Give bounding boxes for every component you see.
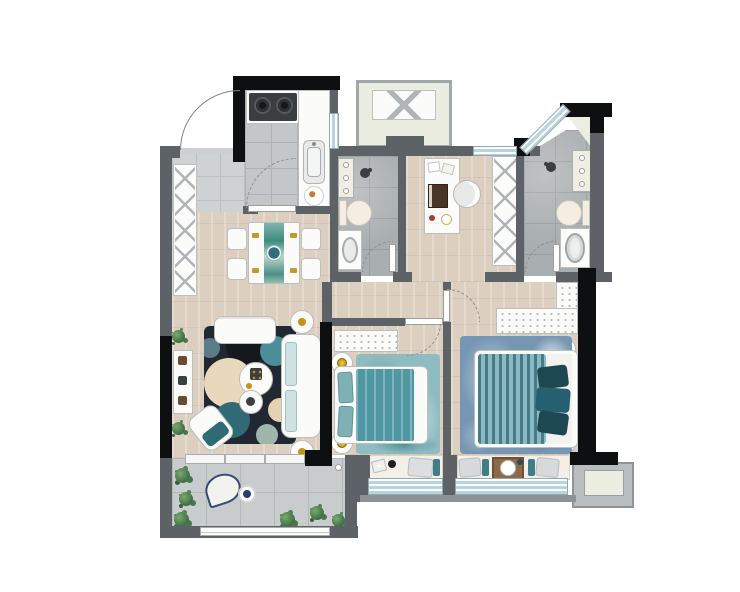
- wall-accent: [305, 450, 332, 466]
- toilet-tank: [582, 200, 590, 226]
- shower-head-icon: [360, 168, 370, 178]
- master-door-leaf: [443, 290, 450, 322]
- tv-console-decor: [178, 396, 187, 405]
- window-sill: [449, 495, 576, 502]
- wall-accent: [160, 336, 172, 458]
- lipstick: [429, 215, 435, 221]
- shelf-jar: [579, 181, 585, 187]
- wall: [296, 206, 338, 214]
- washbasin: [342, 237, 358, 263]
- shelf-jar: [343, 162, 349, 168]
- bathroom-door-leaf: [389, 244, 396, 272]
- vanity-mirror: [428, 184, 448, 208]
- vanity-stool: [453, 180, 481, 208]
- linen-cabinet-cell: [494, 212, 516, 238]
- shelf-jar: [579, 155, 585, 161]
- coffee-table-tray: [250, 368, 262, 380]
- bedroom2-bay-window: [368, 478, 443, 495]
- wall: [590, 130, 604, 282]
- tv-console-decor: [178, 356, 187, 365]
- kitchen-door-leaf: [248, 205, 296, 212]
- plant: [310, 506, 324, 520]
- tray-cup: [517, 459, 523, 465]
- shoe-cabinet-cell: [175, 269, 195, 294]
- wall-accent: [590, 103, 604, 133]
- shoe-cabinet-cell: [175, 244, 195, 269]
- seat-pillow: [535, 457, 560, 478]
- sofa-two-seat: [214, 316, 276, 344]
- wall-accent: [320, 322, 332, 458]
- master-bay-window: [455, 478, 568, 495]
- shoe-cabinet-cell: [175, 166, 195, 191]
- seat-pillow-teal: [482, 459, 489, 476]
- shoe-cabinet-cell: [175, 192, 195, 217]
- balcony-knob: [335, 464, 342, 471]
- dining-chair: [301, 228, 321, 250]
- plant: [179, 492, 193, 506]
- wall-accent: [570, 452, 618, 465]
- side-table-decor: [298, 318, 306, 326]
- place-setting: [252, 268, 259, 273]
- toilet-bowl: [346, 200, 372, 226]
- plant: [172, 330, 185, 343]
- wall: [443, 322, 451, 455]
- wall: [393, 272, 412, 282]
- kitchen-faucet: [312, 142, 316, 146]
- shelf-jar: [343, 188, 349, 194]
- balcony-railing: [200, 527, 330, 536]
- dining-chair: [227, 228, 247, 250]
- linen-cabinet-cell: [494, 239, 516, 264]
- wall: [332, 272, 361, 282]
- wall: [322, 318, 405, 326]
- wall: [160, 146, 172, 336]
- plant: [280, 512, 295, 527]
- shoe-cabinet-cell: [175, 218, 195, 243]
- linen-cabinet: [492, 156, 518, 266]
- plant: [172, 422, 185, 435]
- place-setting: [290, 268, 297, 273]
- coffee-table-decor: [246, 383, 252, 389]
- master-bathroom-door-leaf: [553, 244, 560, 272]
- seat-cup: [388, 460, 396, 468]
- sofa-cushion: [285, 390, 297, 432]
- tray-plate: [500, 460, 516, 476]
- rug-circle: [256, 424, 278, 444]
- tv-console-decor: [178, 376, 187, 385]
- laundry-basin: [565, 233, 585, 263]
- wall: [345, 455, 357, 528]
- balcony-sliding-door: [185, 454, 305, 464]
- window-sill: [360, 495, 451, 502]
- seat-pillow: [407, 457, 434, 478]
- entry-door-swing: [180, 90, 240, 150]
- shelf-jar: [579, 168, 585, 174]
- place-setting: [290, 233, 297, 238]
- wall-accent: [578, 268, 596, 465]
- centerpiece-bowl: [266, 245, 282, 261]
- kitchen-sink-basin: [307, 147, 321, 177]
- dresser: [334, 330, 398, 352]
- kitchen-window: [329, 113, 339, 149]
- wall: [516, 156, 524, 282]
- wardrobe: [556, 282, 578, 309]
- bed2-duvet: [356, 369, 414, 441]
- master-throw-pillow: [537, 364, 569, 389]
- toilet-bowl: [556, 200, 582, 226]
- bedroom2-door-leaf: [405, 318, 443, 325]
- serving-plate: [304, 186, 324, 206]
- sofa-cushion: [285, 342, 297, 386]
- coffee-table-small-decor: [246, 397, 255, 406]
- dining-chair: [227, 258, 247, 280]
- bed2-pillow: [337, 372, 354, 404]
- dining-chair: [301, 258, 321, 280]
- ac-platform-pad: [584, 470, 624, 496]
- dresser: [496, 308, 578, 334]
- balcony-table-decor: [243, 490, 251, 498]
- shoe-cabinet: [173, 164, 197, 296]
- master-throw-pillow: [537, 410, 570, 436]
- wall: [322, 282, 332, 322]
- linen-cabinet-cell: [494, 158, 516, 184]
- stove-burner-right: [276, 97, 293, 114]
- seat-pillow-teal: [528, 459, 535, 476]
- equipment-platform-box: [372, 90, 436, 120]
- plant: [175, 468, 190, 483]
- seat-pillow-teal: [433, 459, 440, 476]
- hallway-window: [473, 146, 517, 156]
- floor-plan: [0, 0, 740, 592]
- seat-pillow: [458, 457, 482, 478]
- hallway-floor: [322, 282, 451, 322]
- wall-accent: [233, 76, 340, 90]
- wall: [398, 156, 406, 282]
- master-throw-pillow: [535, 387, 571, 413]
- wall: [485, 272, 524, 282]
- linen-cabinet-cell: [494, 185, 516, 211]
- vanity-dish: [441, 214, 452, 225]
- plant: [174, 512, 189, 527]
- stove-burner-left: [254, 97, 271, 114]
- bed2-pillow: [337, 406, 354, 438]
- shelf-jar: [343, 175, 349, 181]
- place-setting: [252, 233, 259, 238]
- shower-head-icon: [546, 162, 556, 172]
- dressing-table-papers: [427, 161, 440, 173]
